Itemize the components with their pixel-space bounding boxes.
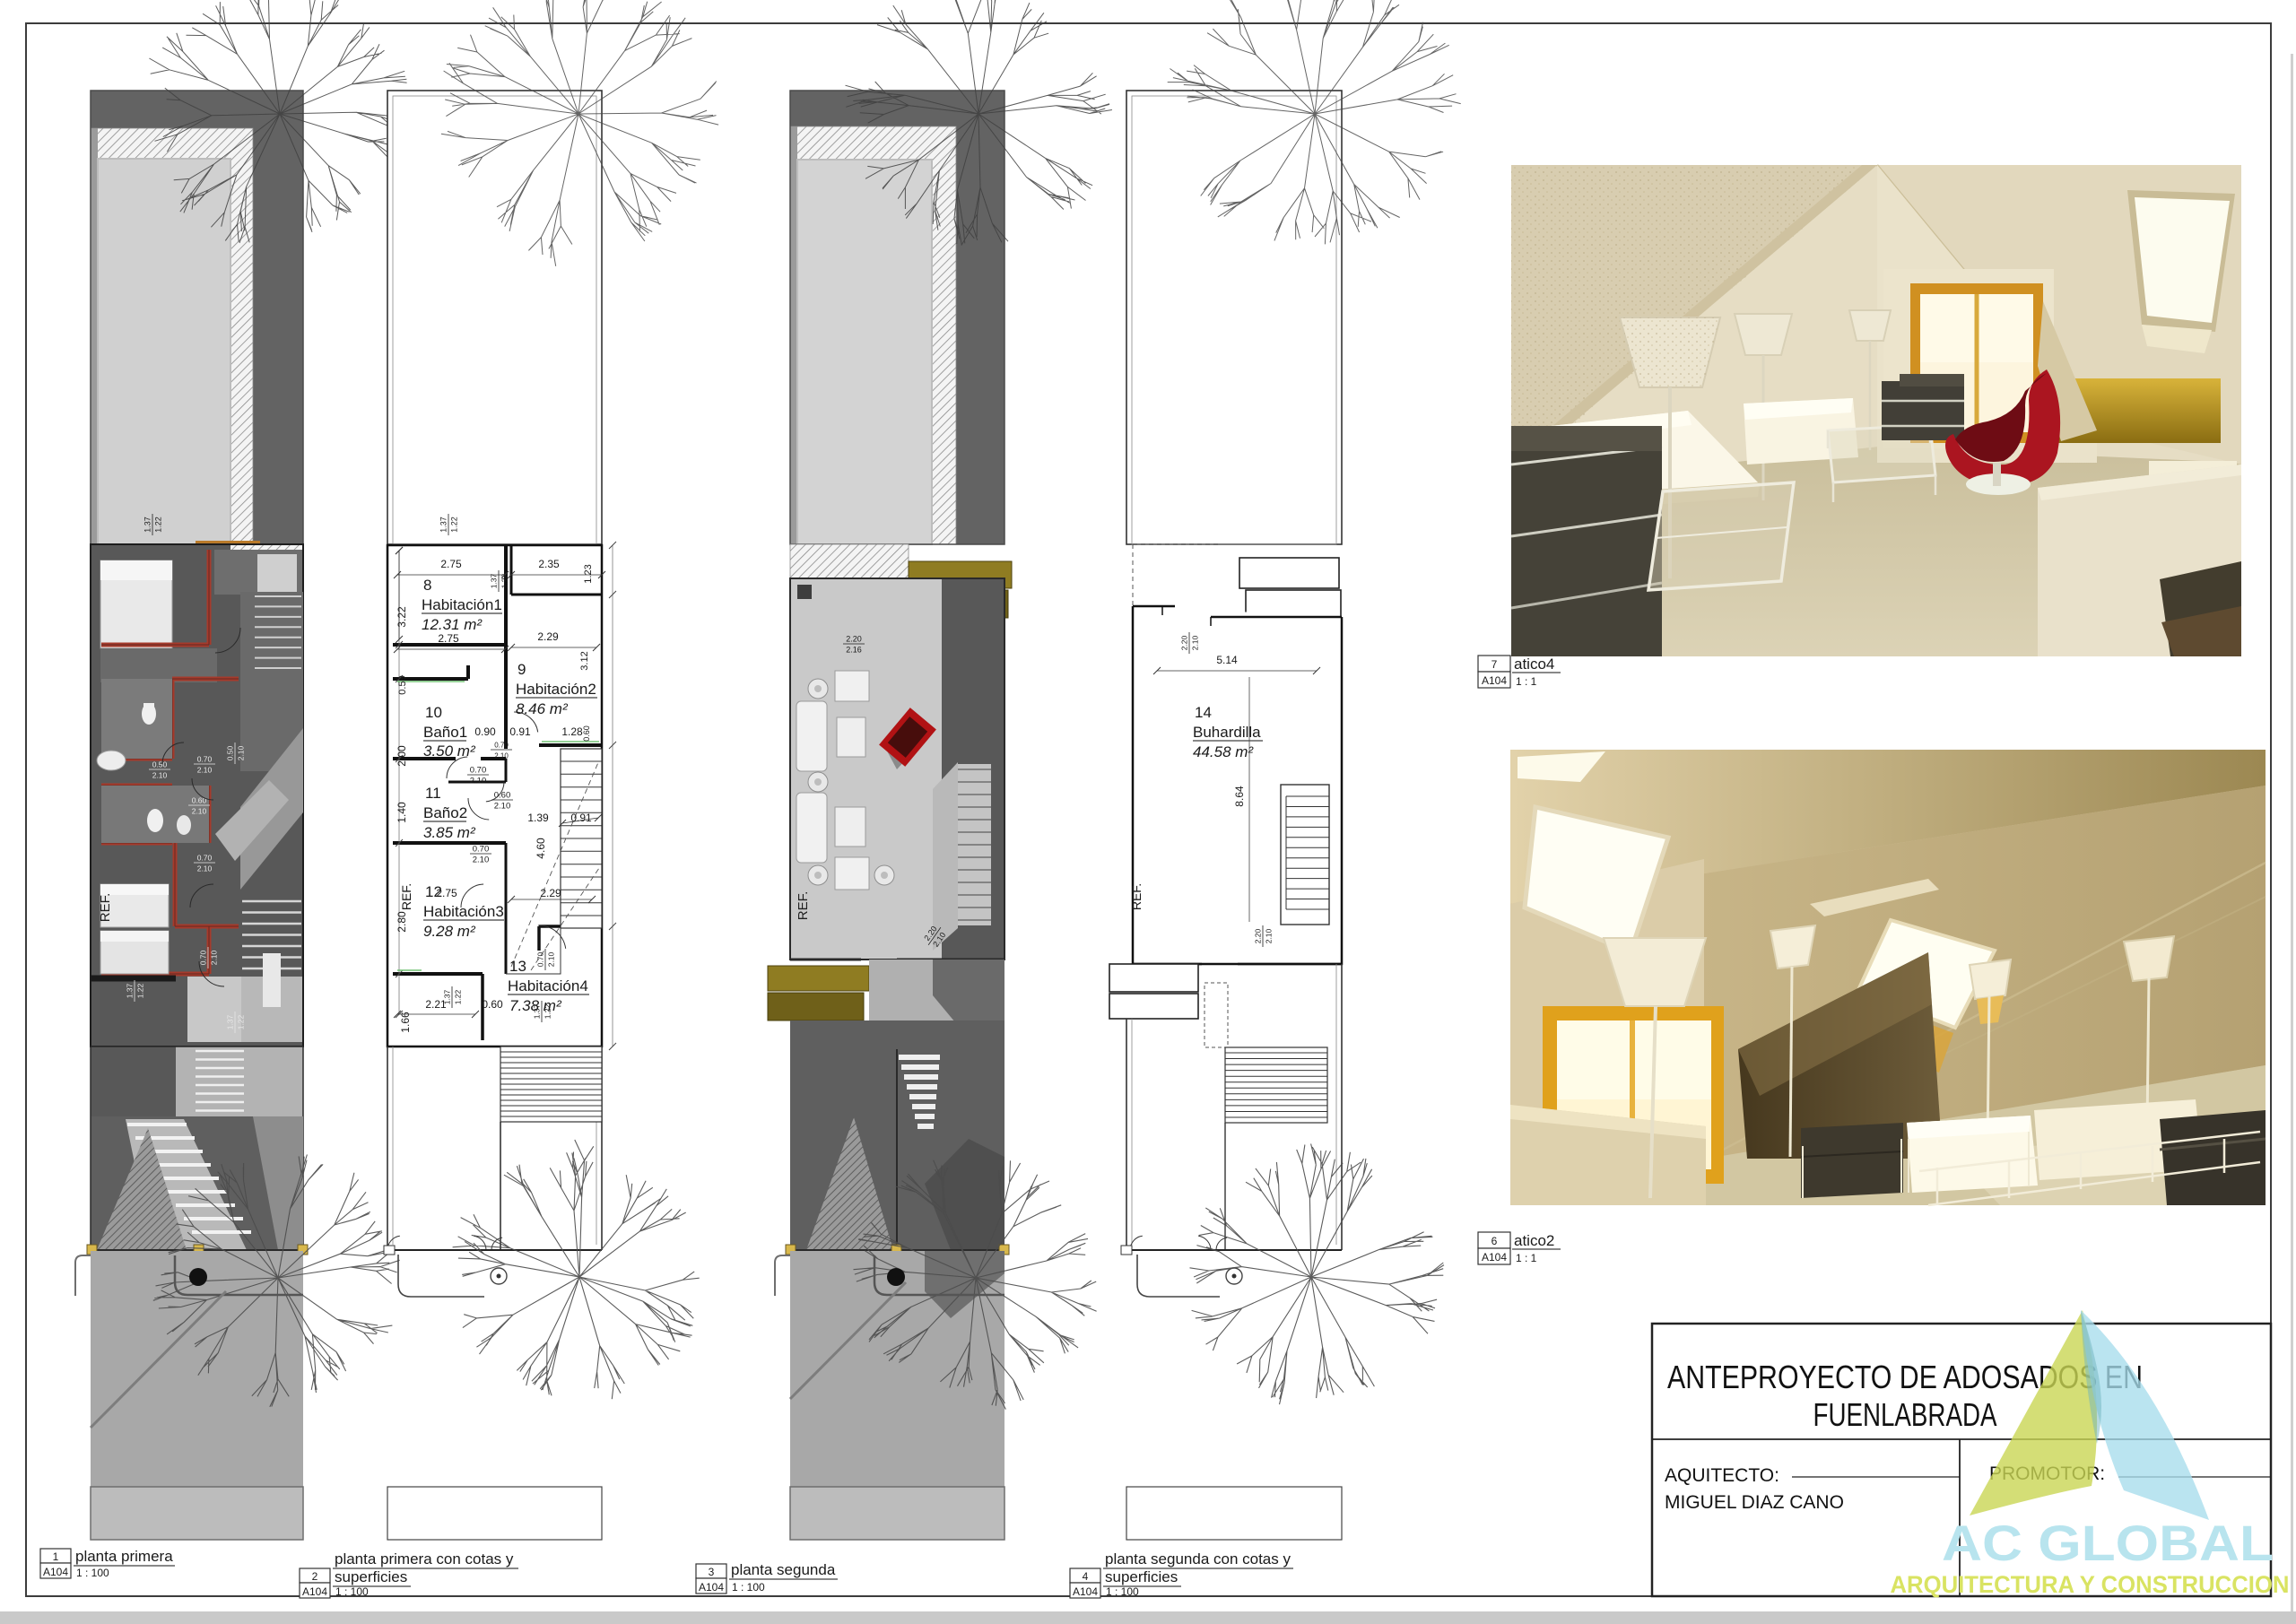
- svg-text:1.39: 1.39: [527, 812, 549, 824]
- svg-text:planta primera con cotas y: planta primera con cotas y: [335, 1550, 514, 1568]
- svg-text:REF.: REF.: [399, 883, 413, 910]
- svg-text:0.70: 0.70: [536, 951, 545, 967]
- svg-text:2.20: 2.20: [846, 635, 862, 644]
- svg-text:2.10: 2.10: [470, 777, 487, 786]
- svg-text:planta segunda con cotas y: planta segunda con cotas y: [1105, 1550, 1291, 1568]
- svg-text:2.10: 2.10: [237, 745, 246, 760]
- svg-text:2.10: 2.10: [494, 752, 509, 760]
- svg-text:6: 6: [1492, 1235, 1498, 1247]
- svg-text:1.37: 1.37: [443, 989, 452, 1004]
- svg-text:2.10: 2.10: [1191, 635, 1200, 650]
- svg-text:2.00: 2.00: [396, 745, 408, 767]
- svg-text:Baño1: Baño1: [423, 724, 467, 741]
- svg-text:superficies: superficies: [1105, 1568, 1178, 1585]
- svg-text:REF.: REF.: [1129, 883, 1144, 910]
- svg-text:12.31 m²: 12.31 m²: [422, 616, 483, 633]
- svg-text:0.91: 0.91: [509, 725, 531, 738]
- svg-text:2.75: 2.75: [436, 887, 457, 899]
- svg-text:A104: A104: [43, 1566, 68, 1578]
- svg-text:13: 13: [509, 958, 526, 975]
- svg-text:3: 3: [709, 1566, 715, 1578]
- svg-text:Buhardilla: Buhardilla: [1193, 724, 1261, 741]
- svg-text:REF.: REF.: [796, 891, 811, 921]
- svg-text:2.10: 2.10: [197, 864, 213, 873]
- svg-text:2.10: 2.10: [152, 771, 168, 780]
- svg-text:0.70: 0.70: [470, 766, 487, 776]
- svg-text:A104: A104: [1482, 1251, 1507, 1264]
- svg-text:AC GLOBAL: AC GLOBAL: [1942, 1515, 2274, 1571]
- svg-text:10: 10: [425, 704, 442, 721]
- svg-text:0.60: 0.60: [482, 998, 503, 1011]
- svg-text:1 : 100: 1 : 100: [732, 1581, 765, 1594]
- svg-text:1.37: 1.37: [439, 517, 448, 533]
- svg-text:3.12: 3.12: [579, 651, 590, 670]
- svg-text:1.37: 1.37: [533, 1003, 542, 1019]
- svg-text:0.70: 0.70: [473, 845, 490, 855]
- svg-text:2.20: 2.20: [1254, 928, 1263, 943]
- svg-text:0.70: 0.70: [494, 742, 509, 750]
- svg-text:2: 2: [312, 1570, 318, 1583]
- svg-text:1: 1: [53, 1550, 59, 1563]
- svg-text:planta segunda: planta segunda: [731, 1561, 836, 1578]
- svg-text:1.22: 1.22: [500, 573, 509, 588]
- svg-text:planta primera: planta primera: [75, 1548, 173, 1565]
- svg-text:Habitación3: Habitación3: [423, 903, 504, 920]
- svg-text:3.85 m²: 3.85 m²: [423, 824, 476, 841]
- svg-text:2.29: 2.29: [540, 887, 561, 899]
- svg-text:1 : 1: 1 : 1: [1516, 675, 1537, 688]
- svg-text:8: 8: [423, 577, 431, 594]
- svg-text:11: 11: [425, 785, 441, 802]
- svg-text:A104: A104: [1073, 1585, 1098, 1598]
- svg-text:A104: A104: [302, 1585, 327, 1598]
- svg-text:9: 9: [517, 661, 526, 678]
- svg-text:0.50: 0.50: [152, 760, 168, 769]
- svg-text:0.60: 0.60: [192, 796, 207, 805]
- svg-text:2.10: 2.10: [197, 766, 213, 775]
- svg-text:5.14: 5.14: [1216, 654, 1238, 666]
- svg-text:1.28: 1.28: [561, 725, 583, 738]
- svg-text:1.22: 1.22: [237, 1014, 246, 1029]
- svg-text:2.20: 2.20: [1180, 635, 1189, 650]
- svg-text:1.37: 1.37: [490, 573, 499, 588]
- svg-text:0.70: 0.70: [199, 950, 208, 965]
- svg-text:8.46 m²: 8.46 m²: [516, 700, 569, 717]
- svg-text:2.10: 2.10: [473, 855, 490, 865]
- svg-text:1.22: 1.22: [544, 1003, 552, 1019]
- svg-text:atico2: atico2: [1514, 1232, 1554, 1249]
- svg-text:3.22: 3.22: [396, 606, 408, 628]
- svg-text:2.80: 2.80: [396, 911, 408, 933]
- svg-text:A104: A104: [699, 1581, 724, 1594]
- svg-text:2.75: 2.75: [440, 558, 462, 570]
- svg-text:Habitación4: Habitación4: [508, 977, 588, 994]
- svg-text:14: 14: [1195, 704, 1212, 721]
- svg-text:1.40: 1.40: [396, 802, 408, 823]
- svg-text:1 : 100: 1 : 100: [1106, 1585, 1139, 1598]
- svg-text:1.23: 1.23: [583, 564, 594, 583]
- svg-text:2.10: 2.10: [192, 807, 207, 816]
- svg-text:ARQUITECTURA Y CONSTRUCCION: ARQUITECTURA Y CONSTRUCCION: [1891, 1571, 2290, 1598]
- svg-text:2.10: 2.10: [1265, 928, 1274, 943]
- svg-text:1.22: 1.22: [154, 517, 163, 533]
- svg-text:2.10: 2.10: [210, 950, 219, 965]
- svg-text:0.50: 0.50: [226, 745, 235, 760]
- svg-text:superficies: superficies: [335, 1568, 407, 1585]
- svg-text:2.29: 2.29: [537, 630, 559, 643]
- svg-text:9.28 m²: 9.28 m²: [423, 923, 476, 940]
- svg-text:0.70: 0.70: [197, 755, 213, 764]
- svg-text:1.37: 1.37: [126, 983, 135, 998]
- svg-text:4: 4: [1083, 1570, 1089, 1583]
- svg-text:2.10: 2.10: [494, 802, 511, 812]
- svg-text:0.60: 0.60: [494, 791, 511, 801]
- svg-text:Habitación1: Habitación1: [422, 596, 502, 613]
- svg-text:2.16: 2.16: [846, 646, 862, 655]
- svg-text:3.50 m²: 3.50 m²: [423, 743, 476, 760]
- svg-text:1 : 1: 1 : 1: [1516, 1252, 1537, 1264]
- svg-text:0.90: 0.90: [474, 725, 496, 738]
- svg-text:1.66: 1.66: [399, 1012, 412, 1033]
- svg-text:0.91: 0.91: [570, 812, 592, 824]
- svg-text:7: 7: [1492, 658, 1498, 671]
- svg-text:2.35: 2.35: [538, 558, 560, 570]
- svg-text:AQUITECTO:: AQUITECTO:: [1665, 1465, 1779, 1486]
- svg-text:1.22: 1.22: [136, 983, 145, 998]
- svg-text:0.60: 0.60: [582, 725, 591, 742]
- svg-text:4.60: 4.60: [535, 838, 547, 859]
- svg-text:Habitación2: Habitación2: [516, 681, 596, 698]
- svg-text:0.59: 0.59: [397, 675, 408, 694]
- svg-text:MIGUEL DIAZ CANO: MIGUEL DIAZ CANO: [1665, 1492, 1844, 1513]
- svg-text:1.37: 1.37: [226, 1014, 235, 1029]
- svg-text:FUENLABRADA: FUENLABRADA: [1813, 1396, 1997, 1433]
- svg-text:atico4: atico4: [1514, 656, 1554, 673]
- svg-text:44.58 m²: 44.58 m²: [1193, 743, 1254, 760]
- svg-text:1.22: 1.22: [450, 517, 459, 533]
- svg-text:1 : 100: 1 : 100: [335, 1585, 369, 1598]
- svg-text:8.64: 8.64: [1233, 786, 1246, 807]
- svg-text:2.10: 2.10: [547, 951, 556, 967]
- svg-text:1.37: 1.37: [143, 517, 152, 533]
- svg-text:A104: A104: [1482, 674, 1507, 687]
- svg-text:0.70: 0.70: [197, 854, 213, 863]
- svg-text:2.75: 2.75: [438, 632, 459, 645]
- svg-text:Baño2: Baño2: [423, 804, 467, 821]
- svg-text:REF.: REF.: [98, 893, 113, 923]
- svg-text:1 : 100: 1 : 100: [76, 1567, 109, 1579]
- svg-text:1.22: 1.22: [454, 989, 463, 1004]
